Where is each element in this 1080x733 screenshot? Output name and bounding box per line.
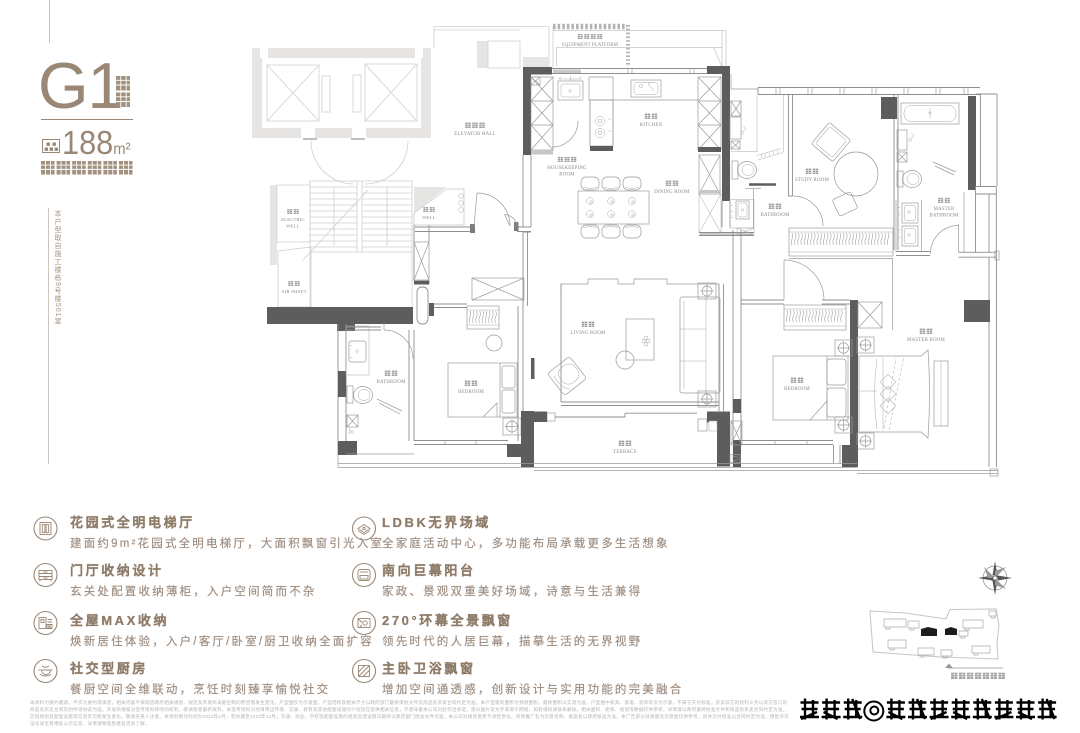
- svg-text:KITCHEN: KITCHEN: [640, 123, 663, 128]
- svg-text:DINING ROOM: DINING ROOM: [654, 190, 690, 195]
- svg-text:BATHROOM: BATHROOM: [376, 380, 405, 385]
- svg-text:ELEVATOR HALL: ELEVATOR HALL: [454, 132, 495, 137]
- svg-text:BEDROOM: BEDROOM: [784, 387, 810, 392]
- svg-text:ROOM: ROOM: [559, 173, 575, 178]
- svg-text:EQUIPMENT PLATFORM: EQUIPMENT PLATFORM: [562, 43, 619, 48]
- svg-text:BEDROOM: BEDROOM: [458, 390, 484, 395]
- svg-text:AIR SHAFT: AIR SHAFT: [281, 289, 306, 294]
- svg-text:MASTER ROOM: MASTER ROOM: [907, 338, 945, 343]
- svg-text:BATHROOM: BATHROOM: [929, 214, 958, 219]
- svg-text:BATHROOM: BATHROOM: [760, 213, 789, 218]
- svg-text:WELL: WELL: [286, 224, 300, 229]
- svg-text:HOUSEKEEPING: HOUSEKEEPING: [547, 166, 587, 171]
- svg-text:LIVING ROOM: LIVING ROOM: [571, 331, 606, 336]
- svg-text:MASTER: MASTER: [933, 207, 955, 212]
- svg-text:WELL: WELL: [422, 215, 436, 220]
- svg-text:ELECTRIC: ELECTRIC: [281, 217, 305, 222]
- svg-text:TERRACE: TERRACE: [613, 450, 637, 455]
- svg-text:STUDY ROOM: STUDY ROOM: [795, 178, 829, 183]
